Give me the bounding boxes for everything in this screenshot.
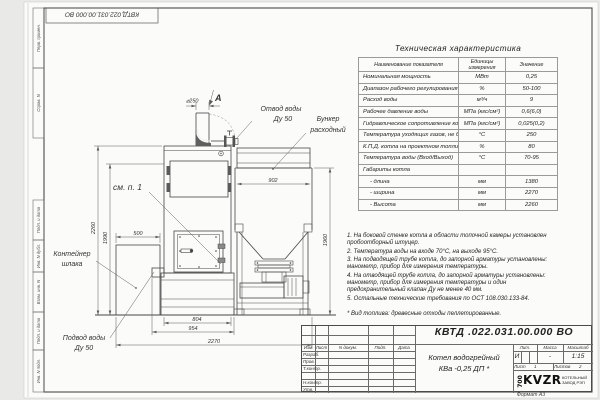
row-razrab: Разраб. xyxy=(303,351,328,358)
logo-subtitle-line2: ЗАВОД РЭП xyxy=(562,380,587,385)
note-line: 4. На отводящей трубе котла, до запорной… xyxy=(347,273,566,295)
dim-2270: 2270 xyxy=(207,339,221,345)
note-line: 5. Остальные технические требования по О… xyxy=(347,296,566,303)
logo-subtitle: КОТЕЛЬНЫЙ ЗАВОД РЭП xyxy=(562,375,587,385)
list-value: 1 xyxy=(534,363,548,370)
side-label: Взам. инв. N xyxy=(36,279,41,304)
masshtab-value: 1:15 xyxy=(563,351,593,363)
fuel-note: * Вид топлива: древесные отходы пеллетир… xyxy=(347,311,566,317)
kvzr-logo: KVZR xyxy=(523,373,562,387)
spec-row: Расход водым³/ч9 xyxy=(359,95,558,107)
note-line: 1. На боковой стенке котла в области топ… xyxy=(347,233,566,248)
col-izm: Изм. xyxy=(302,344,315,351)
side-label: Перв. примен. xyxy=(36,24,41,52)
row-prov: Пров. xyxy=(303,358,328,365)
title-block: Изм. Лист N докум. Подп. Дата Разраб. Пр… xyxy=(301,325,592,392)
massa-value: - xyxy=(537,351,563,363)
col-list: Лист xyxy=(315,344,328,351)
spec-row: - длинамм1380 xyxy=(359,176,558,188)
see-note-label: см. п. 1 xyxy=(113,182,142,192)
dim-1990: 1990 xyxy=(103,231,109,244)
outlet-label-2: Ду 50 xyxy=(273,116,292,123)
spec-section: Техническая характеристика Наименование … xyxy=(358,44,558,211)
hopper-label-2: расходный xyxy=(309,126,345,134)
dim-2260: 2260 xyxy=(91,221,97,235)
spec-row: Диапазон рабочего регулирования%50-100 xyxy=(359,83,558,95)
view-label: А xyxy=(214,93,222,103)
spec-row: Номинальная мощностьМВт0,25 xyxy=(359,72,558,84)
listov-label: Листов xyxy=(554,363,576,370)
list-label: Лист xyxy=(514,363,532,370)
spec-row: К.П.Д. котла на проектном топливе%80 xyxy=(359,141,558,153)
row-tkontr: Т.контр. xyxy=(303,365,328,372)
outlet-label: Отвод воды xyxy=(261,105,303,113)
dim-954: 954 xyxy=(188,326,197,332)
spec-row: - ширинамм2270 xyxy=(359,187,558,199)
manufacturer-logo: 700 KVZR КОТЕЛЬНЫЙ ЗАВОД РЭП xyxy=(513,370,593,393)
dim-500: 500 xyxy=(133,231,143,237)
row-nkontr: Н.контр. xyxy=(303,379,328,386)
col-docum: N докум. xyxy=(328,344,368,351)
inlet-label: Подвод воды xyxy=(63,334,106,342)
side-label: Справ. N xyxy=(36,93,41,111)
side-label: Подп. и дата xyxy=(36,317,41,344)
format-label: Формат А3 xyxy=(470,392,592,398)
document-number: КВТД .022.031.00.000 ВО xyxy=(415,326,593,344)
spec-row: Рабочее давление водыМПа (кгс/см²)0,6(6,… xyxy=(359,106,558,118)
spec-col-units: Единицы измерения xyxy=(459,58,506,72)
slag-label: Контейнер xyxy=(53,250,90,258)
product-name-line2: КВа -0,25 ДП * xyxy=(415,364,513,375)
massa-label: Масса xyxy=(537,344,563,351)
spec-row: Температура уходящих газов, не более°С25… xyxy=(359,129,558,141)
drawing-sheet: Перв. примен. Справ. N Подп. и дата Инв.… xyxy=(0,0,600,400)
side-label: Инв. N дубл. xyxy=(36,244,41,268)
lit-label: Лит. xyxy=(513,344,537,351)
dim-902: 902 xyxy=(268,178,277,184)
dim-804: 804 xyxy=(192,317,201,323)
col-data: Дата xyxy=(393,344,415,351)
technical-notes: 1. На боковой стенке котла в области топ… xyxy=(347,233,566,304)
top-stamp-text: КВТД.022.031.00.000 ВО xyxy=(65,11,139,18)
note-line: 3. На подводящей трубе котла, до запорно… xyxy=(347,257,566,272)
row-utv: Утв. xyxy=(303,386,328,393)
spec-col-value: Значение xyxy=(506,58,558,72)
spec-row: Гидравлическое сопротивление котлаМПа (к… xyxy=(359,118,558,130)
side-label: Подп. и дата xyxy=(36,206,41,233)
side-label: Инв. N подл. xyxy=(36,359,41,383)
spec-row: - Высотамм2260 xyxy=(359,199,558,211)
inlet-label-2: Ду 50 xyxy=(74,345,93,352)
product-name: Котел водогрейный КВа -0,25 ДП * xyxy=(415,344,513,393)
masshtab-label: Масштаб xyxy=(563,344,593,351)
hopper-label: Бункер xyxy=(317,116,340,123)
spec-row: Температура воды (Вход/Выход)°С70-95 xyxy=(359,153,558,165)
lit-value: И xyxy=(513,351,521,363)
spec-table-title: Техническая характеристика xyxy=(358,44,558,53)
col-podp: Подп. xyxy=(368,344,393,351)
product-name-line1: Котел водогрейный xyxy=(415,353,513,364)
diameter-label: ⌀250 xyxy=(186,99,199,105)
slag-label-2: шлака xyxy=(62,261,83,268)
spec-table: Наименование показателя Единицы измерени… xyxy=(358,57,558,211)
dim-1960: 1960 xyxy=(323,233,329,246)
spec-col-name: Наименование показателя xyxy=(359,58,459,72)
spec-row: Габариты котла xyxy=(359,164,558,176)
spec-header-row: Наименование показателя Единицы измерени… xyxy=(359,58,558,72)
note-line: 2. Температура воды на входе 70°С, на вы… xyxy=(347,249,566,256)
listov-value: 2 xyxy=(579,363,591,370)
